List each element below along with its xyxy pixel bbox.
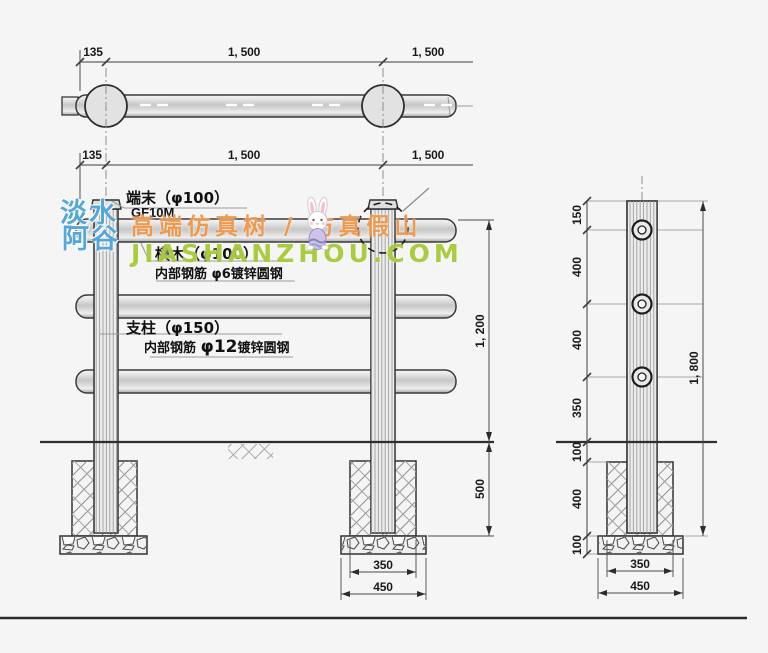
watermark-tagline: 高端仿真树 / 仿真假山 <box>131 207 422 241</box>
label-post-rebar-prefix: 内部钢筋 <box>144 341 196 356</box>
side-dim-base-450: 450 <box>610 579 670 593</box>
front-dim-1200: 1, 200 <box>473 314 487 347</box>
label-post-rebar-suffix: 镀锌圆钢 <box>238 341 290 356</box>
gravel-base-left <box>60 536 147 554</box>
drawing-linework <box>0 0 768 653</box>
elev-dim-1500-b: 1, 500 <box>386 148 470 162</box>
side-dim-150: 150 <box>570 205 584 225</box>
side-gravel-base <box>598 536 683 554</box>
plan-view <box>62 68 473 200</box>
technical-drawing-guardrail: 135 1, 500 1, 500 135 1, 500 1, 500 端末（φ… <box>0 0 768 653</box>
rabbit-mascot-icon <box>301 196 335 250</box>
side-dim-400-a: 400 <box>570 257 584 277</box>
label-post-rebar-size: φ12 <box>201 337 238 357</box>
side-dim-1800: 1, 800 <box>687 351 701 384</box>
side-dim-350: 350 <box>570 398 584 418</box>
side-dim-100-a: 100 <box>570 442 584 462</box>
side-dim-400-b: 400 <box>570 330 584 350</box>
label-post-rebar: 内部钢筋 φ12镀锌圆钢 <box>144 337 290 357</box>
front-dim-450: 450 <box>353 580 413 594</box>
side-dim-400-c: 400 <box>570 489 584 509</box>
earth-hatch-symbol <box>228 444 273 459</box>
front-dim-350: 350 <box>353 558 413 572</box>
label-post: 支柱（φ150） <box>126 317 229 338</box>
plan-dim-135: 135 <box>73 45 113 59</box>
watermark-site-url: JIASHANZHOU.COM <box>131 239 463 268</box>
plan-dim-1500-a: 1, 500 <box>194 45 294 59</box>
side-dim-footing-350: 350 <box>610 557 670 571</box>
gravel-base-right <box>341 536 426 554</box>
elev-dim-1500-a: 1, 500 <box>194 148 294 162</box>
elev-dim-135: 135 <box>72 148 112 162</box>
side-dim-100-b: 100 <box>570 535 584 555</box>
middle-rail <box>76 295 456 318</box>
bottom-rail <box>76 370 456 393</box>
watermark-logo-line1: 淡水 <box>60 201 118 226</box>
front-dim-500: 500 <box>473 479 487 499</box>
plan-dim-1500-b: 1, 500 <box>386 45 470 59</box>
watermark-logo-line2: 阿谷 <box>62 227 120 252</box>
